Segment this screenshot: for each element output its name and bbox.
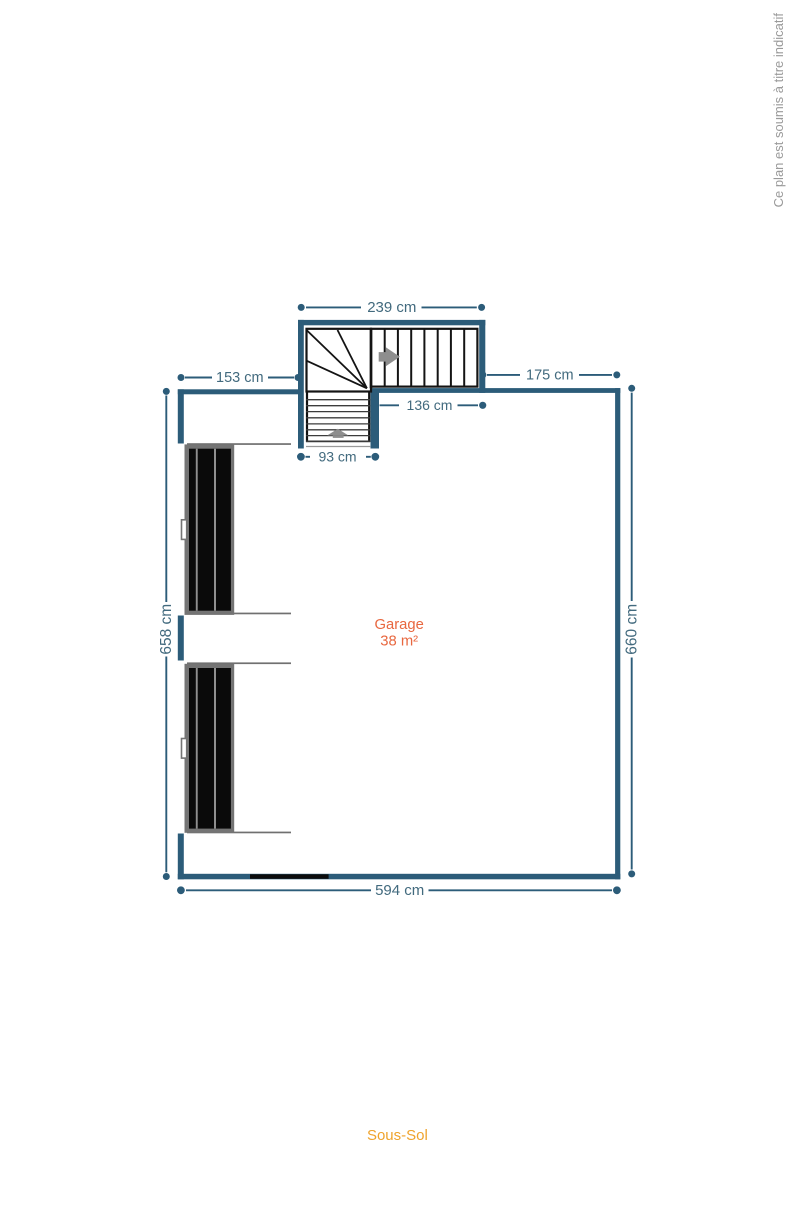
svg-text:136 cm: 136 cm (407, 397, 453, 413)
svg-text:658 cm: 658 cm (158, 604, 175, 655)
svg-text:Garage: Garage (375, 617, 424, 633)
svg-text:660 cm: 660 cm (624, 604, 641, 655)
svg-text:93 cm: 93 cm (318, 448, 356, 464)
svg-text:Sous-Sol: Sous-Sol (367, 1127, 428, 1144)
svg-text:153 cm: 153 cm (216, 370, 264, 386)
svg-text:594 cm: 594 cm (375, 882, 424, 899)
svg-text:239 cm: 239 cm (367, 299, 416, 316)
svg-text:38 m²: 38 m² (380, 633, 418, 649)
svg-text:175 cm: 175 cm (526, 368, 574, 384)
svg-text:Ce plan est soumis à titre ind: Ce plan est soumis à titre indicatif (771, 13, 786, 208)
